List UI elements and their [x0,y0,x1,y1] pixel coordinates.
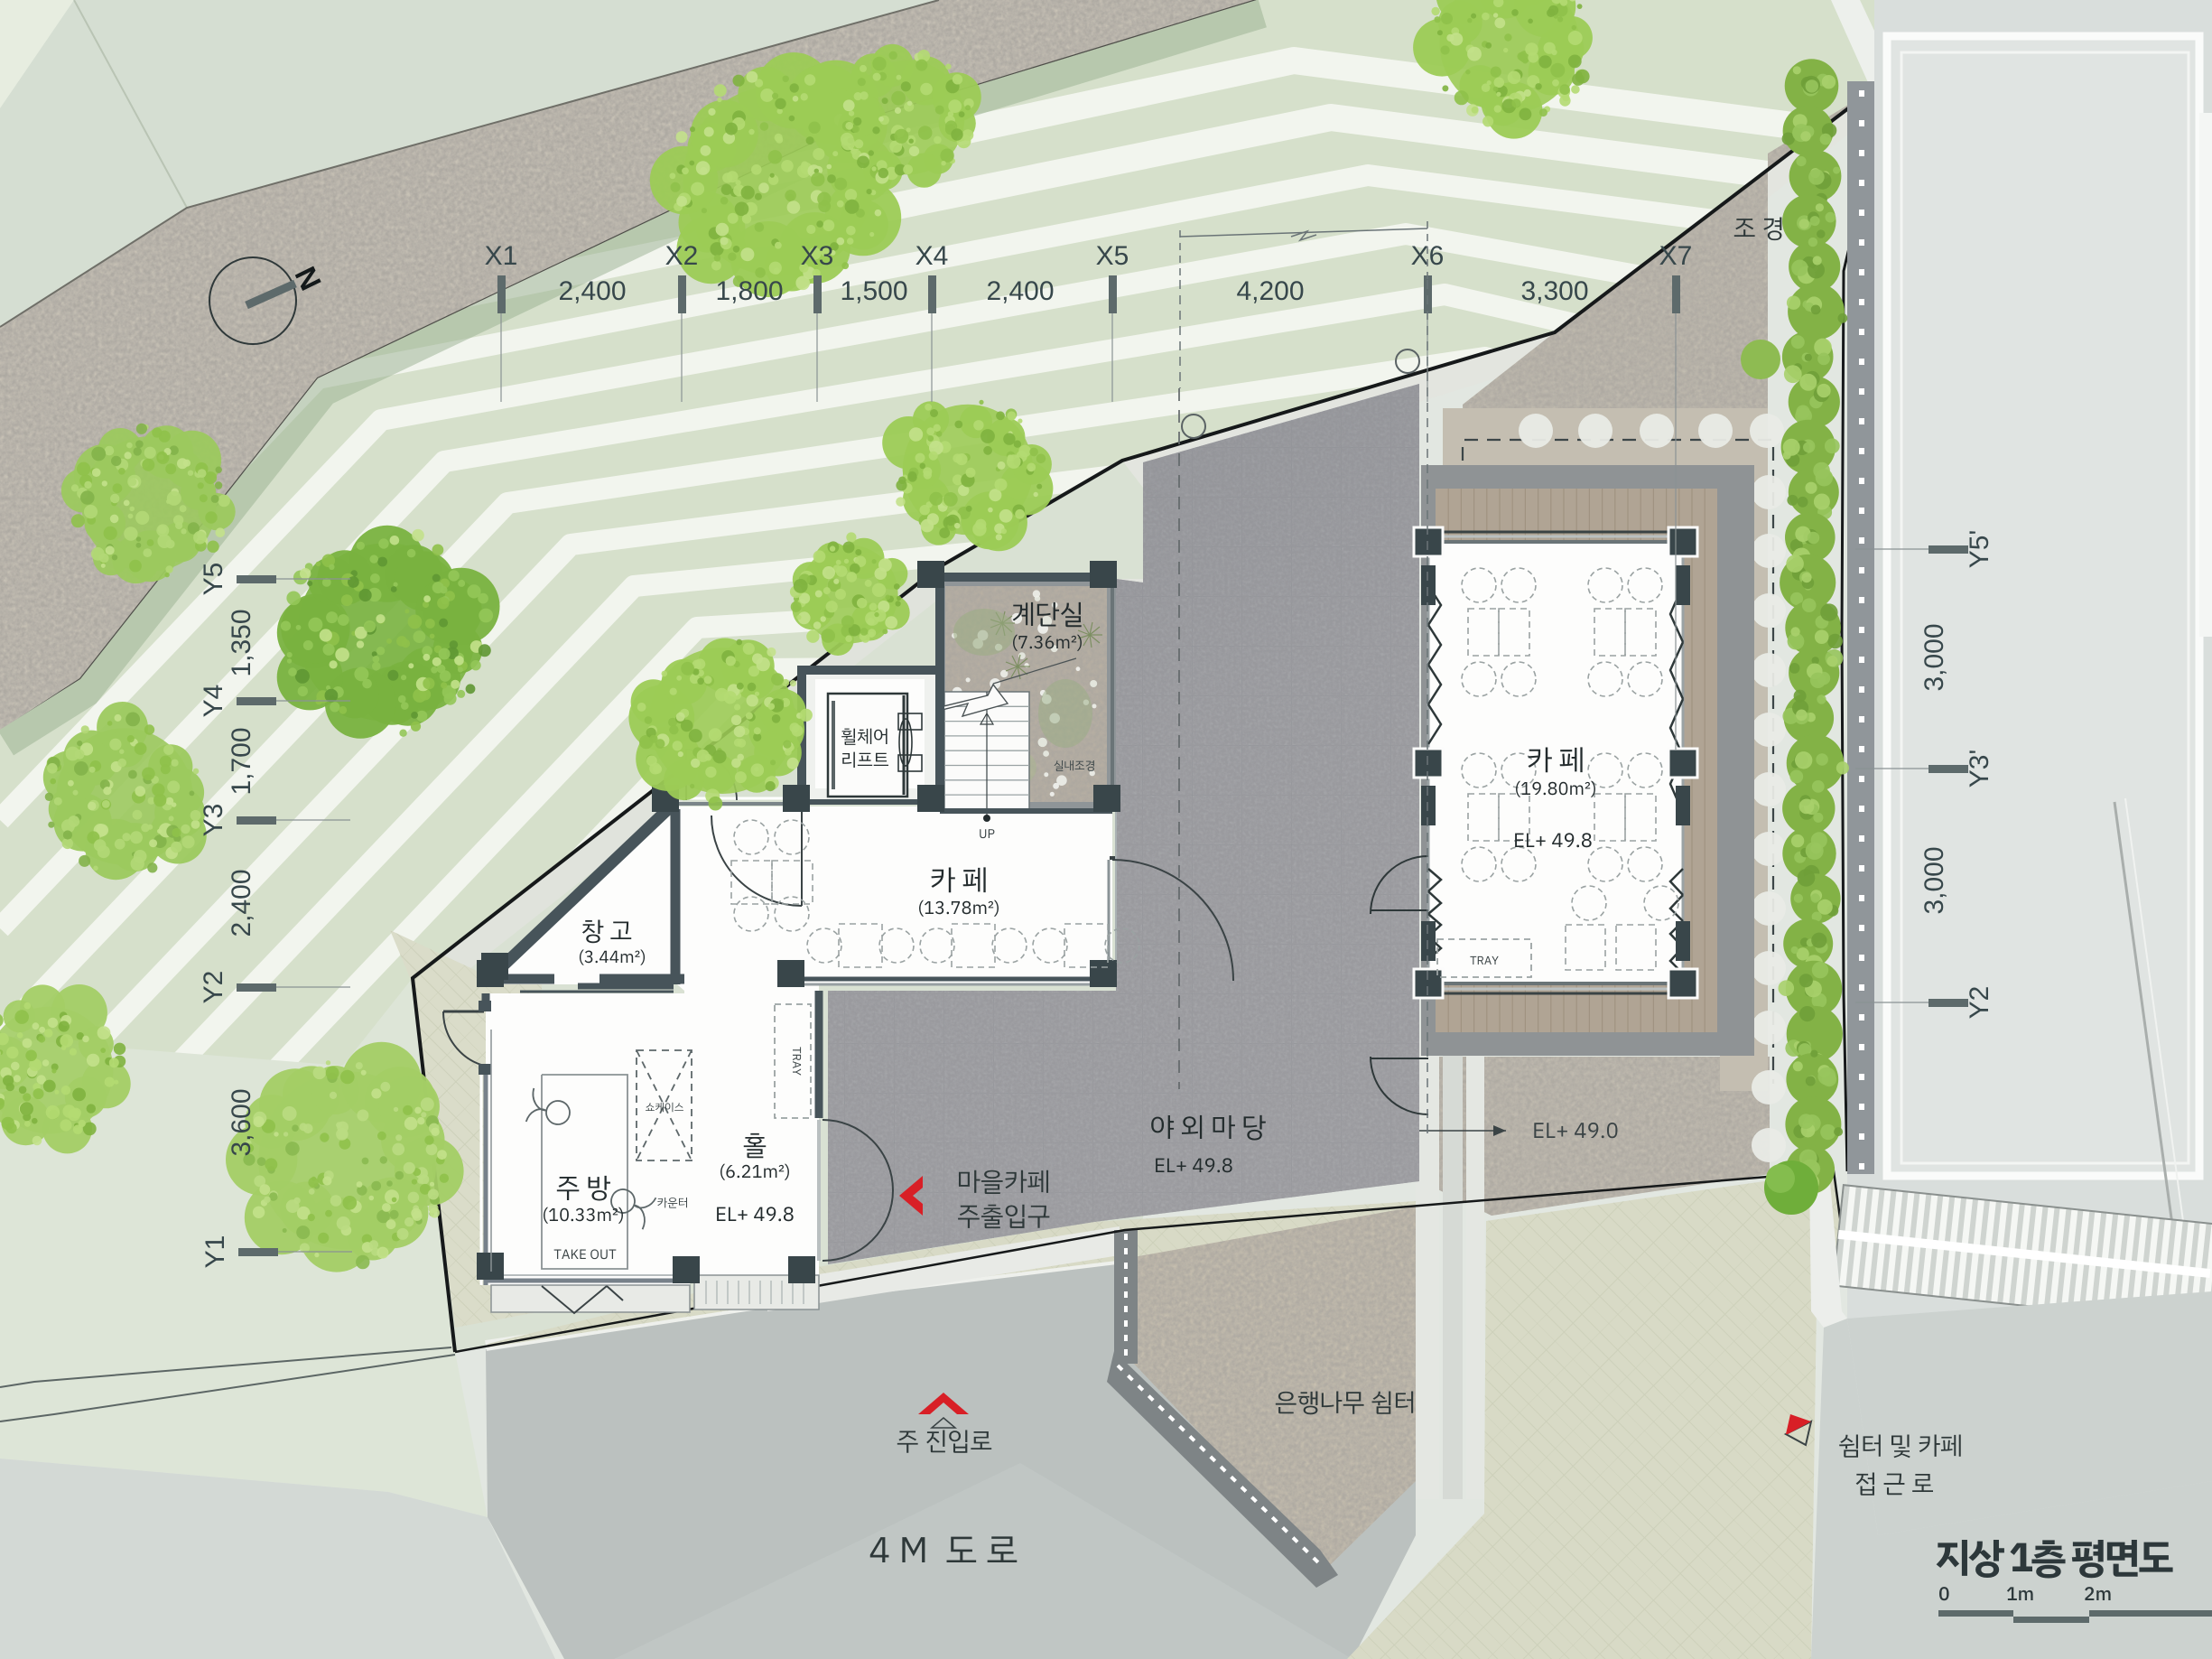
svg-text:Y5: Y5 [199,563,228,596]
svg-text:Y2: Y2 [199,971,228,1004]
svg-text:Y5': Y5' [1965,530,1994,568]
svg-text:3,000: 3,000 [1919,846,1949,914]
svg-text:X2: X2 [665,241,699,271]
svg-text:1,800: 1,800 [715,276,783,306]
svg-text:X4: X4 [915,241,949,271]
svg-text:2,400: 2,400 [558,276,626,306]
svg-text:Y4: Y4 [199,685,228,718]
svg-text:Y1: Y1 [200,1235,230,1269]
svg-text:2,400: 2,400 [227,869,256,937]
svg-text:X7: X7 [1659,241,1693,271]
svg-text:3,300: 3,300 [1520,276,1588,306]
svg-text:3,000: 3,000 [1919,623,1949,691]
svg-text:X1: X1 [485,241,518,271]
svg-text:Y3: Y3 [199,804,228,837]
svg-text:Y3': Y3' [1965,750,1994,788]
svg-text:2,400: 2,400 [986,276,1054,306]
svg-text:X6: X6 [1411,241,1445,271]
svg-text:Y2: Y2 [1965,986,1994,1020]
svg-text:X5: X5 [1096,241,1129,271]
svg-text:4,200: 4,200 [1236,276,1304,306]
svg-text:1,700: 1,700 [227,727,256,795]
svg-text:X3: X3 [801,241,834,271]
svg-text:3,600: 3,600 [227,1088,256,1156]
svg-text:1,500: 1,500 [840,276,907,306]
svg-text:1,350: 1,350 [227,609,256,676]
